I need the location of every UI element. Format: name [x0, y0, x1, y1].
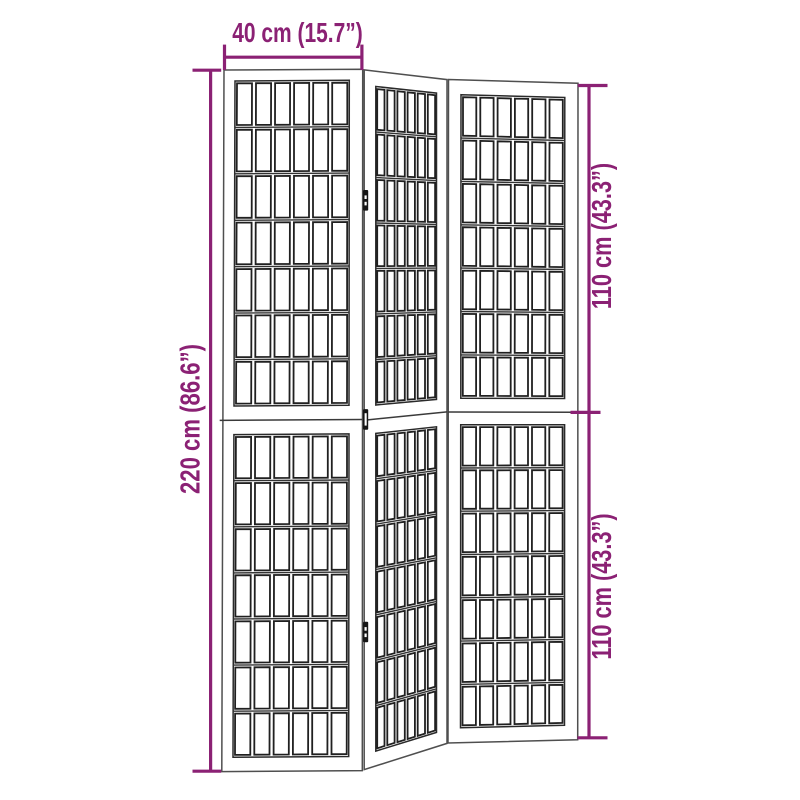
svg-text:110 cm (43.3”): 110 cm (43.3”): [586, 163, 617, 309]
svg-text:220 cm (86.6”): 220 cm (86.6”): [175, 344, 206, 494]
svg-text:110 cm (43.3”): 110 cm (43.3”): [586, 513, 617, 659]
svg-text:40 cm (15.7”): 40 cm (15.7”): [232, 17, 363, 48]
